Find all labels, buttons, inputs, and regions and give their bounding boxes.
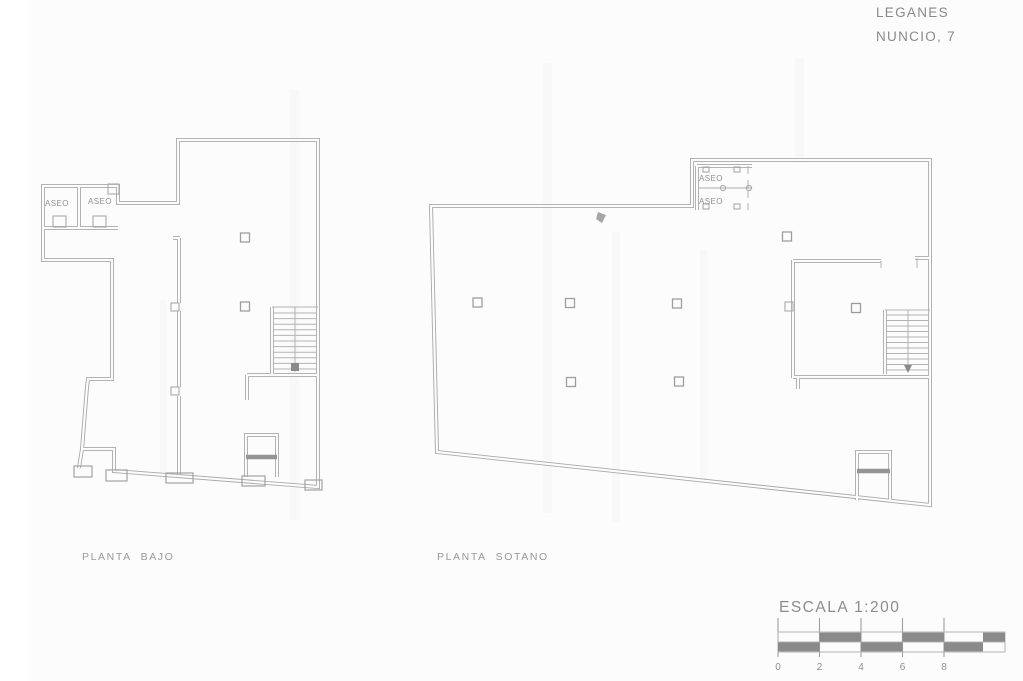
staircase xyxy=(885,310,930,373)
drawing-sheet: ASEO ASEO xyxy=(0,0,1023,681)
paper-margin xyxy=(0,0,30,681)
scan-smudges xyxy=(160,58,804,522)
staircase xyxy=(272,307,318,372)
wc-fixture xyxy=(53,216,66,227)
wc-fixture xyxy=(93,216,106,227)
planta-sotano-plan: ASEO ASEO xyxy=(431,160,930,505)
door-opening xyxy=(171,303,179,311)
room-label-aseo: ASEO xyxy=(88,197,112,206)
plan-caption-planta-bajo: PLANTA BAJO xyxy=(82,551,174,563)
plan-caption-planta-sotano: PLANTA SOTANO xyxy=(437,551,549,563)
scale-tick-label: 4 xyxy=(858,662,864,673)
scale-tick-label: 6 xyxy=(900,662,906,673)
planta-sotano-walls xyxy=(431,160,930,505)
columns xyxy=(473,232,861,387)
scale-bar: ESCALA 1:200 0 2 4 6 8 xyxy=(775,599,1005,673)
floor-plan-drawing: ASEO ASEO xyxy=(0,0,1023,681)
room-label-aseo: ASEO xyxy=(699,197,723,206)
door-swing-mark xyxy=(596,212,606,223)
planta-bajo-plan: ASEO ASEO xyxy=(43,140,322,490)
scale-tick-label: 0 xyxy=(775,662,781,673)
scale-tick-label: 8 xyxy=(941,662,947,673)
room-label-aseo: ASEO xyxy=(45,199,69,208)
door-opening xyxy=(171,387,179,395)
columns xyxy=(241,233,250,311)
sheet-address: NUNCIO, 7 xyxy=(876,29,956,44)
scale-title: ESCALA 1:200 xyxy=(779,599,900,616)
stair-landing-marker xyxy=(291,363,299,371)
scale-tick-label: 2 xyxy=(817,662,823,673)
room-label-aseo: ASEO xyxy=(699,174,723,183)
stair-direction-arrow xyxy=(904,365,912,373)
sheet-location: LEGANES xyxy=(876,5,949,20)
